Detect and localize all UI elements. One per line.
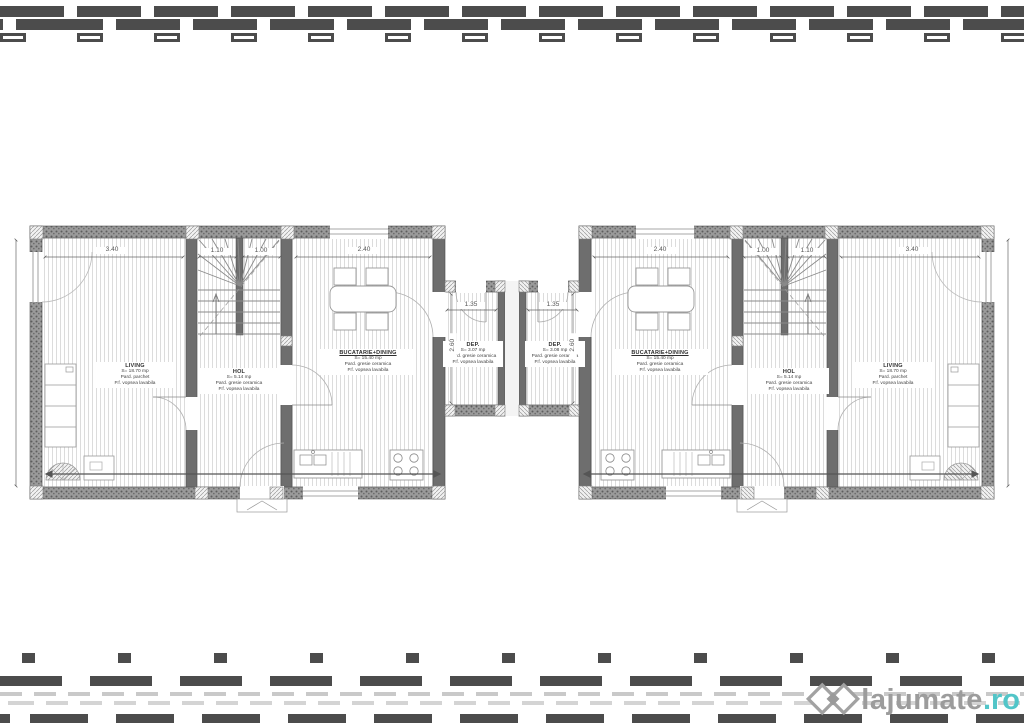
room-finish: P.f. vopsea lavabila — [527, 360, 583, 366]
watermark-tld-text: .ro — [983, 684, 1020, 717]
room-finish: P.f. vopsea lavabila — [751, 387, 827, 393]
dim-living-width-left: 3.40 — [96, 247, 128, 254]
room-finish: P.f. vopsea lavabila — [97, 381, 173, 387]
room-label-living-left: LIVING S= 18.70 mp Pard. parchet P.f. vo… — [95, 362, 175, 388]
room-label-living-right: LIVING S= 18.70 mp Pard. parchet P.f. vo… — [853, 362, 933, 388]
dim-stair2-left: 1.00 — [247, 248, 275, 255]
dim-stair1-right: 1.10 — [793, 248, 821, 255]
dim-stair1-left: 1.10 — [203, 248, 231, 255]
room-finish: P.f. vopsea lavabila — [322, 368, 414, 374]
dim-stair2-right: 1.00 — [749, 248, 777, 255]
room-finish: P.f. vopsea lavabila — [201, 387, 277, 393]
dim-porch-width-right: 1.35 — [539, 302, 567, 309]
dim-porch-depth-right: 2.60 — [570, 333, 577, 357]
room-label-hall-right: HOL S= 5.14 mp Pard. gresie ceramica P.f… — [749, 368, 829, 394]
dim-living-width-right: 3.40 — [896, 247, 928, 254]
watermark-brand-text: lajumate — [861, 684, 983, 717]
floorplan-canvas: BA — [0, 0, 1024, 723]
dim-porch-depth-left: 2.60 — [450, 333, 457, 357]
dim-kitchen-width-left: 2.40 — [348, 247, 380, 254]
room-finish: P.f. vopsea lavabila — [614, 368, 706, 374]
room-finish: P.f. vopsea lavabila — [855, 381, 931, 387]
room-label-hall-left: HOL S= 5.14 mp Pard. gresie ceramica P.f… — [199, 368, 279, 394]
room-label-kitchen-left: BUCATARIE+DINING S= 15.40 mp Pard. gresi… — [320, 349, 416, 375]
lajumate-watermark: lajumate.ro — [805, 680, 1020, 720]
room-finish: P.f. vopsea lavabila — [445, 360, 501, 366]
dim-porch-width-left: 1.35 — [457, 302, 485, 309]
lajumate-logo-icon — [805, 681, 861, 719]
room-label-kitchen-right: BUCATARIE+DINING S= 15.40 mp Pard. gresi… — [612, 349, 708, 375]
dim-kitchen-width-right: 2.40 — [644, 247, 676, 254]
